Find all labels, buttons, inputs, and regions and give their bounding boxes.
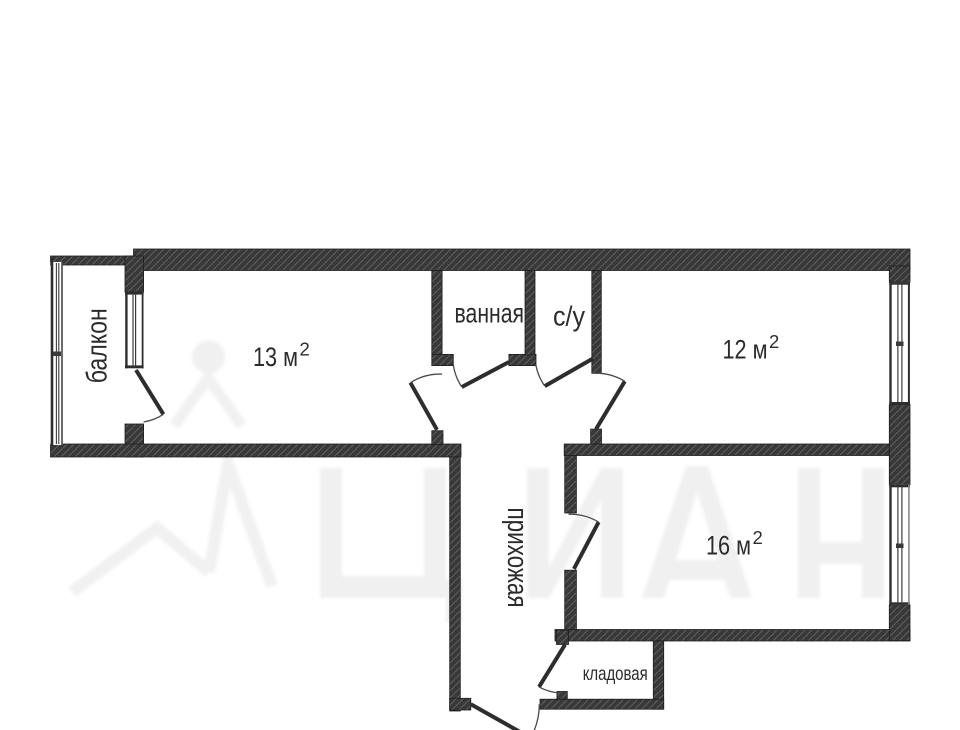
svg-text:2: 2 (753, 527, 763, 548)
svg-text:кладовая: кладовая (583, 663, 648, 685)
svg-text:2: 2 (300, 339, 310, 360)
svg-text:12 м: 12 м (723, 335, 768, 365)
svg-text:балкон: балкон (82, 308, 114, 383)
svg-text:с/у: с/у (553, 301, 585, 332)
svg-text:13 м: 13 м (253, 342, 298, 372)
svg-text:прихожая: прихожая (501, 508, 533, 608)
svg-text:2: 2 (769, 331, 779, 352)
svg-text:16 м: 16 м (706, 531, 751, 561)
svg-text:ванная: ванная (455, 298, 525, 329)
